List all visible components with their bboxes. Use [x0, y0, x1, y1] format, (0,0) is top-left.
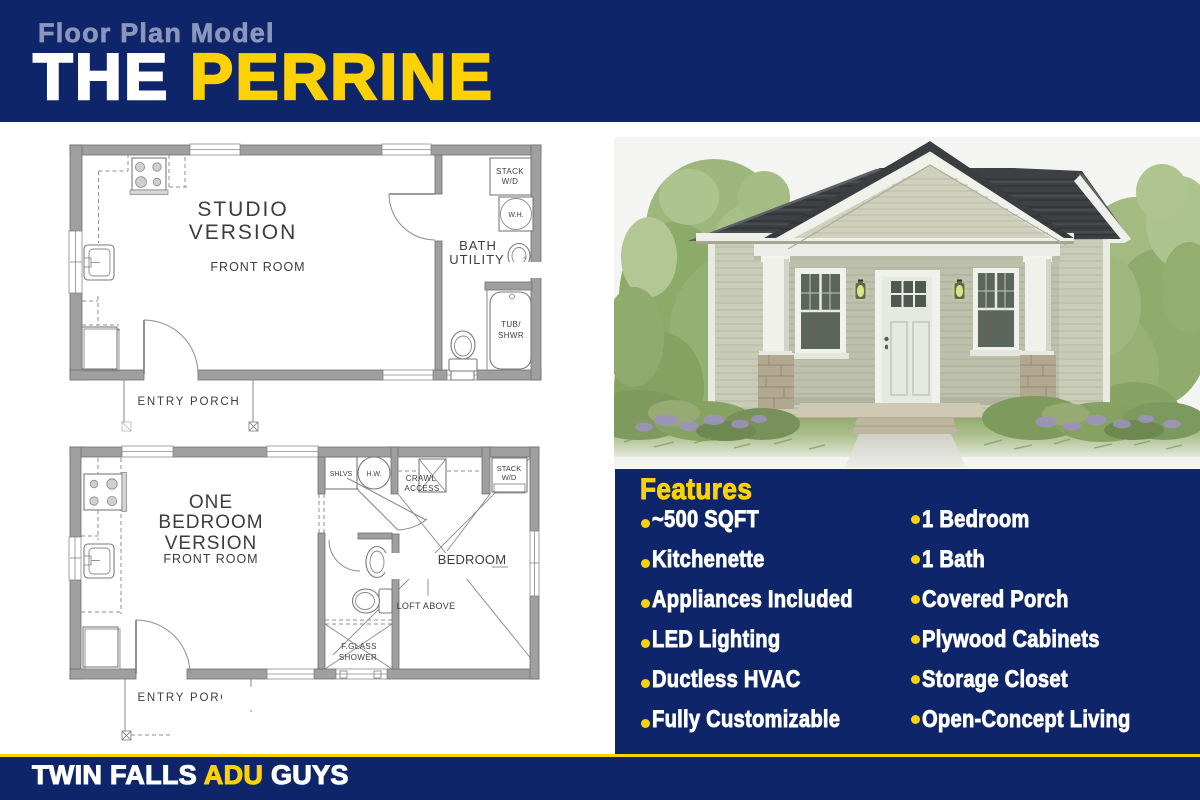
svg-text:F.GLASS: F.GLASS — [341, 642, 377, 651]
svg-text:UTILITY: UTILITY — [449, 252, 504, 267]
svg-text:FRONT ROOM: FRONT ROOM — [210, 260, 305, 274]
svg-text:TUB/: TUB/ — [501, 320, 521, 329]
svg-text:SHLVS: SHLVS — [330, 471, 353, 478]
svg-text:VERSION: VERSION — [189, 221, 298, 244]
svg-text:BEDROOM: BEDROOM — [158, 512, 263, 533]
svg-text:SHWR: SHWR — [498, 331, 524, 340]
svg-text:W/D: W/D — [502, 177, 519, 186]
svg-text:VERSION: VERSION — [165, 533, 258, 554]
svg-text:W/D: W/D — [502, 473, 517, 482]
svg-text:STACK: STACK — [497, 464, 521, 473]
svg-text:CRAWL: CRAWL — [406, 474, 437, 483]
svg-text:LOFT ABOVE: LOFT ABOVE — [397, 601, 456, 611]
svg-text:ONE: ONE — [189, 492, 233, 513]
svg-text:W.H.: W.H. — [508, 212, 523, 219]
svg-text:O: O — [523, 255, 526, 260]
svg-text:ACCESS: ACCESS — [404, 484, 439, 493]
svg-text:ENTRY PORCH: ENTRY PORCH — [137, 396, 240, 408]
svg-text:BEDROOM: BEDROOM — [438, 552, 507, 567]
svg-text:H.W.: H.W. — [366, 471, 381, 478]
svg-text:SHOWER: SHOWER — [339, 653, 377, 662]
svg-text:STUDIO: STUDIO — [197, 198, 288, 221]
svg-text:BATH: BATH — [459, 238, 497, 253]
svg-text:STACK: STACK — [496, 167, 524, 176]
svg-text:FRONT ROOM: FRONT ROOM — [163, 552, 258, 566]
